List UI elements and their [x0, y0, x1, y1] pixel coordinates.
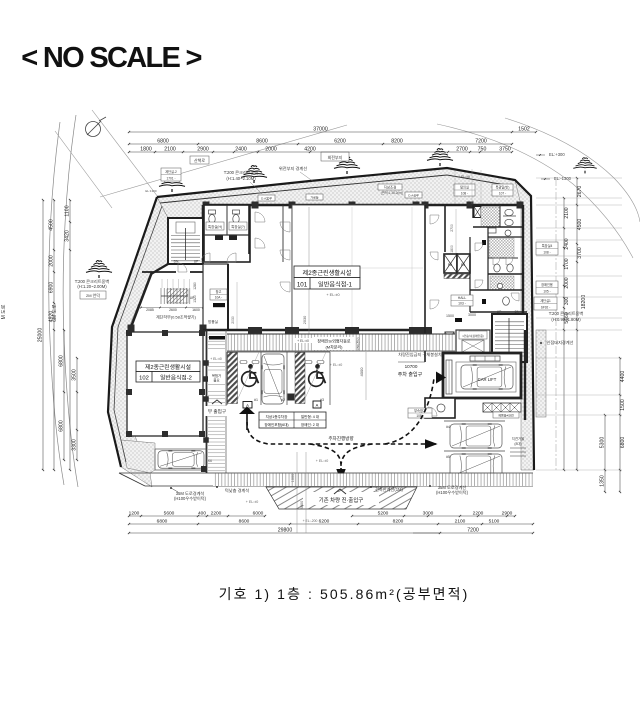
- svg-text:8600: 8600: [256, 139, 268, 145]
- svg-text:+ EL:±0: + EL:±0: [330, 363, 342, 367]
- svg-text:일반음식점-2: 일반음식점-2: [160, 374, 192, 382]
- svg-text:6800: 6800: [157, 519, 168, 525]
- svg-text:1800: 1800: [450, 245, 454, 253]
- svg-text:(H100우수받이턱): (H100우수받이턱): [174, 495, 207, 502]
- svg-text:(H:1.20~2.00M): (H:1.20~2.00M): [77, 284, 107, 289]
- svg-text:(H100우수받이턱): (H100우수받이턱): [436, 489, 469, 496]
- svg-text:2700: 2700: [456, 147, 468, 153]
- svg-text:D.A실루: D.A실루: [408, 193, 419, 198]
- svg-text:6800: 6800: [59, 420, 65, 432]
- svg-text:차량진입금지 구체봉설치: 차량진입금지 구체봉설치: [398, 351, 442, 358]
- svg-text:#5: #5: [446, 455, 450, 459]
- svg-text:(8대): (8대): [514, 441, 521, 446]
- svg-text:복험거: 복험거: [212, 373, 221, 378]
- svg-text:2000: 2000: [564, 277, 570, 288]
- svg-text:위전부지 경계선: 위전부지 경계선: [279, 165, 307, 172]
- svg-text:3300: 3300: [72, 439, 78, 451]
- svg-text:턱낮춤 경계석: 턱낮춤 경계석: [225, 487, 249, 494]
- svg-text:6M 도로: 6M 도로: [52, 304, 58, 322]
- svg-text:창고: 창고: [216, 289, 222, 294]
- svg-text:5600: 5600: [164, 511, 175, 517]
- svg-text:PD: PD: [448, 263, 453, 267]
- svg-text:1500: 1500: [446, 314, 454, 318]
- svg-text:107 -: 107 -: [499, 192, 506, 196]
- svg-text:2000: 2000: [265, 147, 277, 153]
- svg-text:6200: 6200: [334, 139, 346, 145]
- svg-text:(H:0.90~1.80M): (H:0.90~1.80M): [551, 317, 581, 322]
- svg-text:제2종근린생활시설: 제2종근린생활시설: [145, 363, 191, 371]
- svg-text:6000: 6000: [253, 511, 264, 517]
- svg-text:장애인용: 장애인용: [541, 282, 553, 287]
- svg-text:1000: 1000: [291, 474, 295, 482]
- svg-text:3700: 3700: [577, 247, 583, 259]
- svg-text:T:200 콘크리트옹벽: T:200 콘크리트옹벽: [549, 310, 584, 317]
- svg-text:37000: 37000: [313, 127, 328, 133]
- svg-text:DN: DN: [515, 310, 520, 314]
- svg-text:4400: 4400: [620, 371, 626, 383]
- svg-text:부 출입구: 부 출입구: [208, 408, 226, 415]
- svg-text:EL:1300: EL:1300: [145, 189, 157, 193]
- svg-text:5200: 5200: [378, 511, 389, 517]
- svg-text:지상1층주차장: 지상1층주차장: [266, 414, 289, 419]
- svg-text:4200: 4200: [304, 147, 316, 153]
- svg-text:#2: #2: [281, 398, 285, 402]
- svg-text:2200: 2200: [211, 511, 222, 517]
- svg-text:#1: #1: [254, 398, 258, 402]
- svg-text:1280: 1280: [193, 282, 197, 290]
- svg-text:UP: UP: [497, 310, 502, 314]
- svg-text:+ EL:±0: + EL:±0: [297, 339, 309, 343]
- svg-text:400: 400: [198, 511, 206, 517]
- svg-text:EL:+300: EL:+300: [549, 152, 565, 157]
- svg-text:8600: 8600: [239, 519, 250, 525]
- svg-text:4000: 4000: [359, 367, 364, 377]
- svg-text:6800: 6800: [59, 355, 65, 367]
- svg-text:HALL: HALL: [458, 296, 467, 300]
- svg-text:2M 언덕: 2M 언덕: [86, 292, 100, 298]
- svg-text:300: 300: [564, 297, 570, 306]
- svg-text:장애인포함(6대): 장애인포함(6대): [264, 422, 288, 427]
- svg-text:CAR LIFT: CAR LIFT: [478, 377, 497, 382]
- svg-text:2100: 2100: [455, 519, 466, 525]
- svg-text:10700: 10700: [405, 364, 418, 369]
- svg-text:+ EL:±0: + EL:±0: [326, 293, 339, 297]
- svg-text:제2종근린생활시설: 제2종근린생활시설: [303, 269, 352, 277]
- svg-text:2000: 2000: [49, 255, 55, 267]
- svg-text:1100: 1100: [65, 205, 71, 216]
- svg-text:일반형: 4 대: 일반형: 4 대: [301, 414, 319, 419]
- svg-text:특장실(?): 특장실(?): [231, 224, 245, 229]
- svg-text:기존 차량 진·출입구: 기존 차량 진·출입구: [319, 496, 364, 504]
- svg-text:6200: 6200: [319, 519, 330, 525]
- svg-text:2085: 2085: [146, 308, 154, 312]
- svg-text:2900: 2900: [197, 147, 209, 153]
- svg-text:특광일(반): 특광일(반): [496, 185, 510, 190]
- svg-text:+ EL:±0: + EL:±0: [246, 500, 258, 504]
- svg-text:물요: 물요: [213, 378, 219, 383]
- svg-text:제물용#안련: 제물용#안련: [498, 413, 514, 418]
- svg-text:(H:1.40~2.10M): (H:1.40~2.10M): [226, 176, 256, 181]
- svg-text:2670: 2670: [577, 186, 583, 198]
- svg-text:7200: 7200: [467, 528, 479, 534]
- svg-text:1인승식(장애인용): 1인승식(장애인용): [462, 334, 483, 338]
- svg-text:+ EL:±0: + EL:±0: [210, 357, 222, 361]
- svg-text:지상조경: 지상조경: [384, 185, 396, 190]
- svg-text:6800: 6800: [157, 139, 169, 145]
- svg-text:4500: 4500: [49, 219, 55, 231]
- svg-text:8200: 8200: [391, 139, 403, 145]
- svg-text:+ EL:-200: + EL:-200: [303, 519, 318, 523]
- svg-text:방풍실: 방풍실: [208, 319, 218, 324]
- svg-text:회전부지: 회전부지: [328, 154, 343, 160]
- svg-text:계단하부(0.58조적쌓기): 계단하부(0.58조적쌓기): [156, 314, 197, 320]
- svg-text:기호 1) 1층 : 505.86m²(공부면적): 기호 1) 1층 : 505.86m²(공부면적): [219, 586, 470, 602]
- svg-text:+ EL:±0: + EL:±0: [458, 175, 470, 179]
- svg-text:8200: 8200: [393, 519, 404, 525]
- svg-text:2030: 2030: [303, 316, 307, 324]
- svg-text:+ EL:±0: + EL:±0: [316, 459, 328, 463]
- svg-text:D.A実루: D.A実루: [261, 196, 272, 201]
- svg-text:1350: 1350: [600, 475, 606, 487]
- svg-text:SF92 -: SF92 -: [541, 305, 551, 309]
- svg-text:탈의실: 탈의실: [460, 185, 469, 190]
- svg-text:M 도로: M 도로: [1, 304, 7, 319]
- svg-text:2600: 2600: [169, 308, 177, 312]
- svg-text:2100: 2100: [564, 207, 570, 218]
- svg-text:장애인S/외형자동로: 장애인S/외형자동로: [317, 338, 351, 344]
- svg-text:#4: #4: [446, 425, 450, 429]
- svg-text:2900: 2900: [502, 511, 513, 517]
- svg-text:2030: 2030: [231, 316, 235, 324]
- svg-text:2400: 2400: [235, 147, 247, 153]
- svg-text:3000: 3000: [423, 511, 434, 517]
- svg-text:7200: 7200: [475, 139, 487, 145]
- svg-text:750: 750: [478, 147, 487, 153]
- svg-text:주차진행방향: 주차진행방향: [328, 435, 354, 442]
- svg-text:2100: 2100: [164, 147, 176, 153]
- svg-text:101: 101: [297, 282, 308, 289]
- svg-text:102: 102: [139, 376, 149, 382]
- svg-text:5300: 5300: [600, 437, 606, 449]
- svg-text:3750: 3750: [499, 147, 511, 153]
- svg-text:UP: UP: [194, 260, 199, 264]
- svg-text:1320: 1320: [193, 295, 197, 303]
- svg-text:3500: 3500: [72, 369, 78, 381]
- svg-text:10A -: 10A -: [215, 296, 222, 300]
- svg-text:4000: 4000: [300, 501, 304, 509]
- svg-text:< NO SCALE >: < NO SCALE >: [21, 42, 201, 74]
- svg-text:2700: 2700: [450, 224, 454, 232]
- svg-text:5100: 5100: [489, 519, 500, 525]
- svg-text:가로등: 가로등: [310, 195, 319, 200]
- svg-text:특장실4: 특장실4: [542, 243, 553, 248]
- svg-text:1500: 1500: [620, 399, 626, 411]
- svg-text:계단실-2: 계단실-2: [165, 169, 177, 174]
- svg-text:108 -: 108 -: [543, 250, 550, 254]
- svg-text:29800: 29800: [278, 528, 293, 534]
- svg-text:103 -: 103 -: [458, 302, 466, 306]
- svg-text:1/50(경사): 1/50(경사): [355, 337, 360, 350]
- svg-text:3420: 3420: [65, 230, 71, 242]
- svg-text:K6: K6: [208, 459, 212, 463]
- svg-text:EL:-1300: EL:-1300: [554, 176, 572, 181]
- svg-text:1701 -: 1701 -: [166, 176, 175, 180]
- svg-text:특장실(H): 특장실(H): [208, 224, 222, 229]
- svg-text:1800: 1800: [140, 147, 152, 153]
- svg-text:T:200 콘크리트옹벽: T:200 콘크리트옹벽: [224, 169, 259, 176]
- svg-text:25000: 25000: [38, 328, 44, 343]
- svg-text:6900: 6900: [49, 282, 55, 294]
- svg-text:인접대지경계선: 인접대지경계선: [547, 339, 574, 346]
- svg-text:6800: 6800: [620, 437, 626, 449]
- svg-text:산책로: 산책로: [194, 157, 205, 163]
- svg-text:(면적:1,38.2(m)): (면적:1,38.2(m)): [381, 190, 404, 195]
- svg-text:1700: 1700: [564, 258, 570, 269]
- svg-text:주차 출입구: 주차 출입구: [398, 371, 423, 378]
- svg-text:3000: 3000: [468, 313, 476, 317]
- svg-text:1600: 1600: [192, 308, 200, 312]
- svg-text:건축한계선(1M): 건축한계선(1M): [375, 486, 403, 493]
- svg-text:(M차분리): (M차분리): [325, 344, 343, 350]
- svg-text:일반음식점-1: 일반음식점-1: [318, 281, 353, 289]
- svg-text:A: A: [316, 403, 319, 408]
- svg-text:4500: 4500: [577, 219, 583, 231]
- svg-text:장애인: 2 대: 장애인: 2 대: [301, 422, 319, 427]
- svg-text:2200: 2200: [473, 511, 484, 517]
- svg-text:105 -: 105 -: [543, 289, 550, 293]
- svg-text:지견거울: 지견거울: [512, 436, 524, 441]
- svg-text:1502: 1502: [518, 127, 530, 133]
- svg-text:계단실1: 계단실1: [540, 298, 551, 303]
- svg-text:1200: 1200: [129, 511, 140, 517]
- svg-text:108 -: 108 -: [461, 192, 468, 196]
